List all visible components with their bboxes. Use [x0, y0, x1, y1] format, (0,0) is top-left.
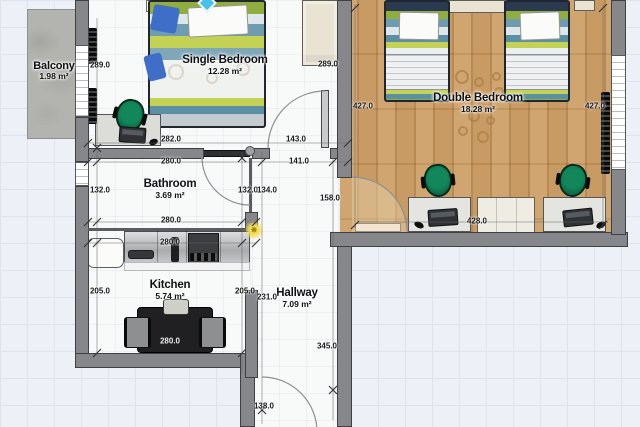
door-swing-fill: [352, 177, 407, 232]
dimension-label: 280.0: [161, 157, 181, 166]
dimension-label: 282.0: [161, 135, 181, 144]
dimension-label: 289.0: [90, 61, 110, 70]
room-area: 5.74 m²: [150, 292, 191, 302]
room-name: Double Bedroom: [433, 92, 523, 105]
room-name: Kitchen: [150, 279, 191, 292]
dimension-label: 280.0: [160, 337, 180, 346]
room-name: Hallway: [276, 287, 317, 300]
dimension-label: 132.0: [90, 186, 110, 195]
dimension-label: 427.0: [585, 102, 605, 111]
dimension-label: 345.0: [317, 342, 337, 351]
room-name: Single Bedroom: [182, 54, 267, 67]
room-area: 18.28 m²: [433, 105, 523, 115]
dimension-label: 428.0: [467, 217, 487, 226]
room-label-single-bedroom: Single Bedroom 12.28 m²: [182, 54, 267, 76]
room-name: Bathroom: [144, 178, 197, 191]
room-area: 12.28 m²: [182, 67, 267, 77]
dimension-label: 158.0: [320, 194, 340, 203]
room-label-bathroom: Bathroom 3.69 m²: [144, 178, 197, 200]
room-label-double-bedroom: Double Bedroom 18.28 m²: [433, 92, 523, 114]
dimension-label: 280.0: [160, 238, 180, 247]
dimension-label: 143.0: [286, 135, 306, 144]
dimension-label: 205.0: [90, 287, 110, 296]
room-label-balcony: Balcony 1.98 m²: [33, 60, 74, 82]
dimension-label: 141.0: [289, 157, 309, 166]
floor-plan: ✸: [0, 0, 640, 427]
dimension-label: 427.0: [353, 102, 373, 111]
dimension-lines: [88, 4, 608, 424]
dimension-ticks: [84, 4, 607, 414]
dimension-label: 289.0: [318, 60, 338, 69]
room-area: 1.98 m²: [33, 72, 74, 82]
dimension-label: 138.0: [254, 402, 274, 411]
dimension-label: 231.0: [257, 293, 277, 302]
room-area: 7.09 m²: [276, 300, 317, 310]
room-label-kitchen: Kitchen 5.74 m²: [150, 279, 191, 301]
room-label-hallway: Hallway 7.09 m²: [276, 287, 317, 309]
dimension-label: 134.0: [257, 186, 277, 195]
dimension-label: 205.0: [235, 287, 255, 296]
dimension-label: 132.0: [238, 186, 258, 195]
dimension-label: 280.0: [161, 216, 181, 225]
door-hinge-dot: [245, 146, 255, 156]
room-area: 3.69 m²: [144, 191, 197, 201]
